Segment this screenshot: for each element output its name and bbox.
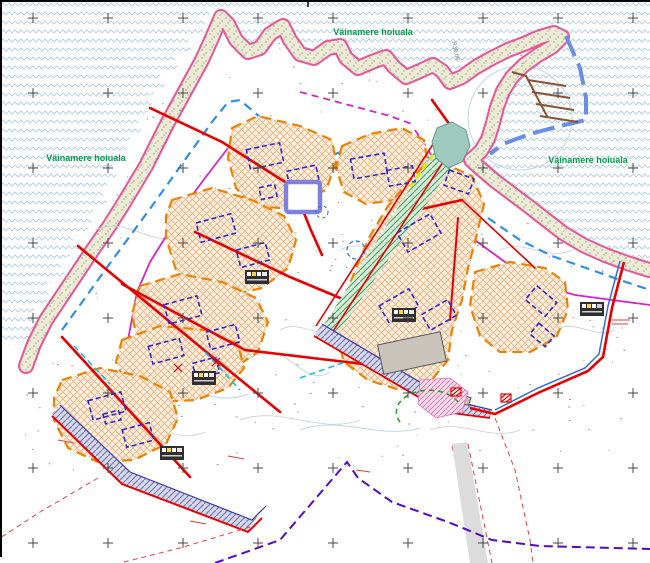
protected-area-label-top: Väinamere hoiuala <box>333 27 414 37</box>
protected-area-label-right: Väinamere hoiuala <box>548 155 629 165</box>
plot-far-right <box>470 262 568 352</box>
protected-area-label-left: Väinamere hoiuala <box>46 153 127 163</box>
plan-map-svg: Väinamere hoiuala Väinamere hoiuala Väin… <box>0 0 650 563</box>
existing-farmstead-envelope <box>286 182 320 212</box>
plan-map-canvas: Väinamere hoiuala Väinamere hoiuala Väin… <box>0 0 650 563</box>
hatched-square-symbol <box>451 388 461 396</box>
hatched-square-symbol <box>501 394 511 402</box>
